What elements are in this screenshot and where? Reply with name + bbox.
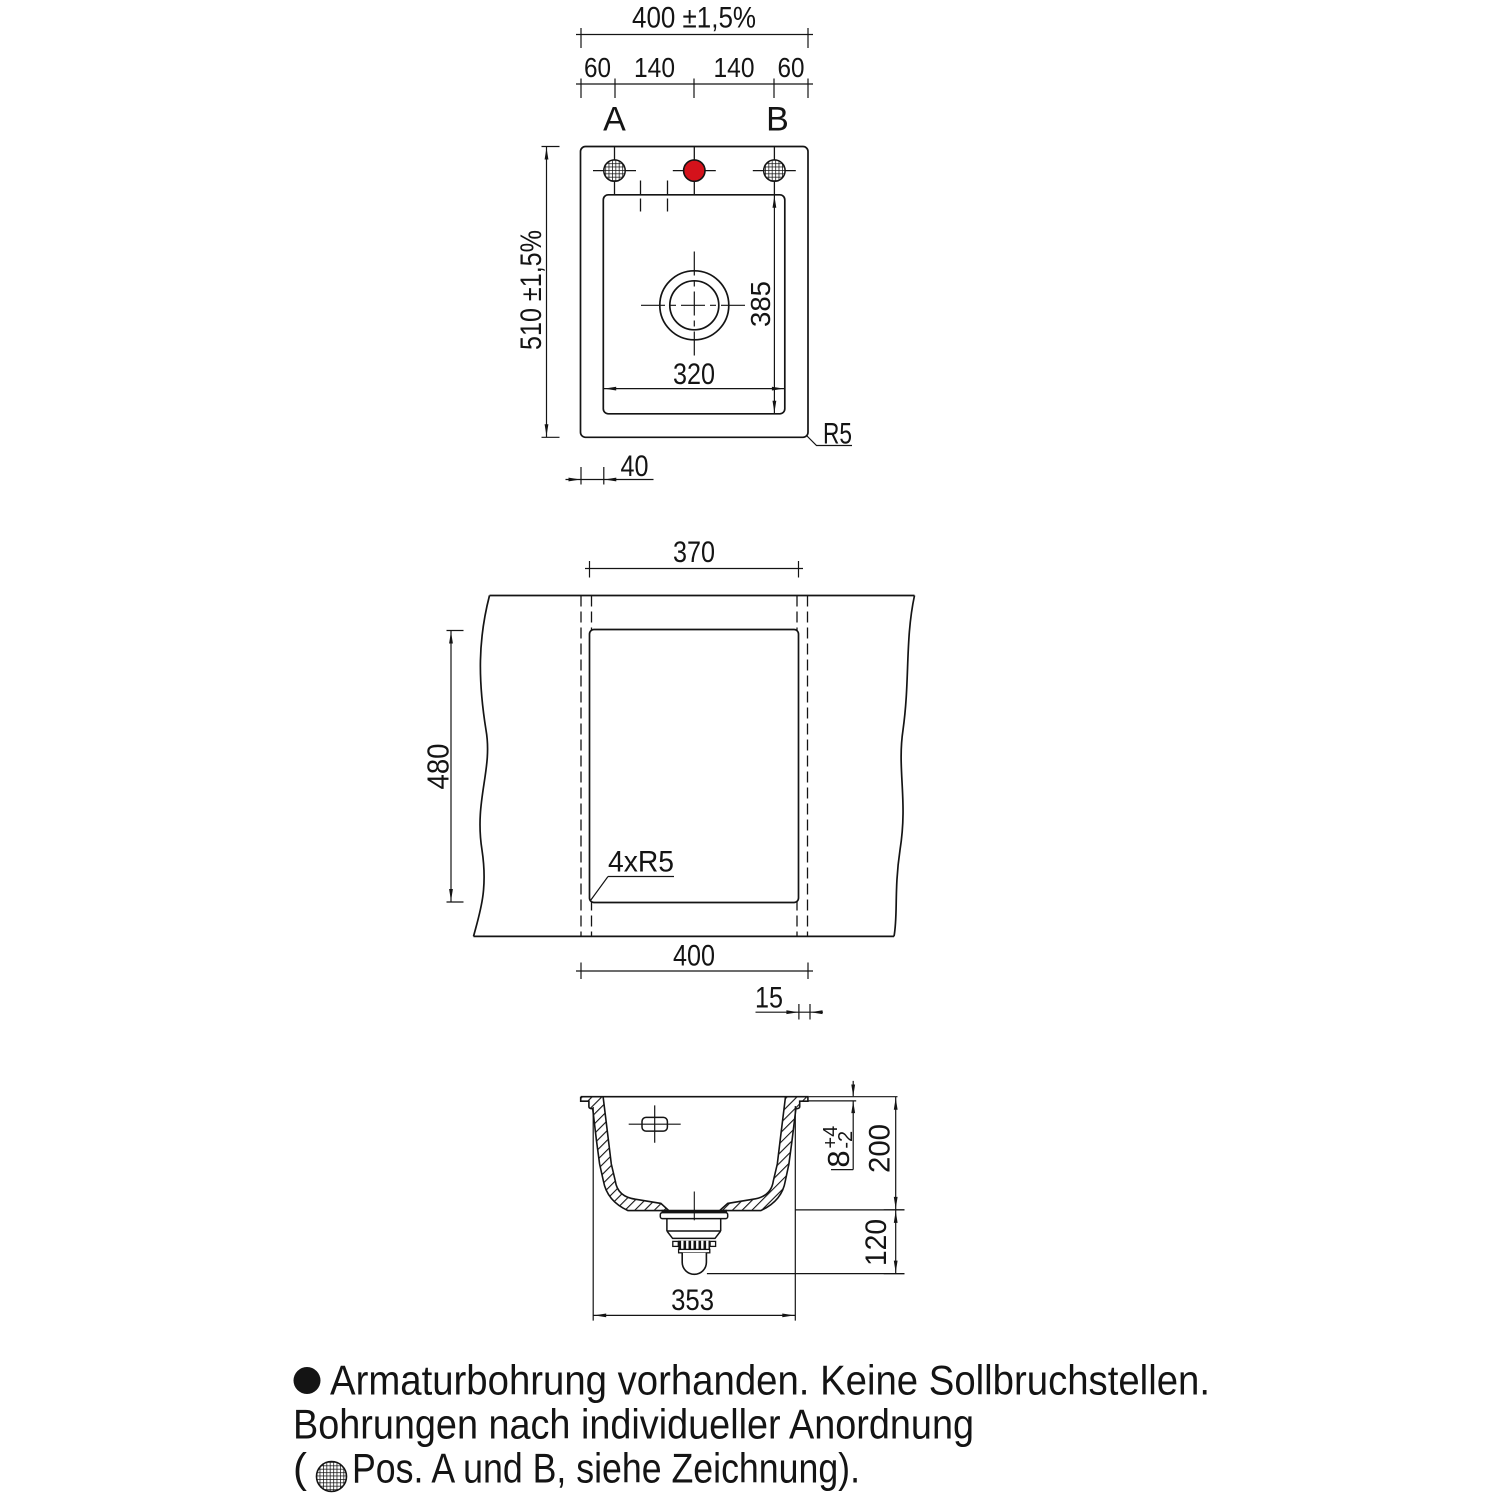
svg-text:15: 15 [755,982,783,1015]
svg-text:140: 140 [634,52,675,83]
svg-text:400 ±1,5%: 400 ±1,5% [632,2,756,35]
svg-text:140: 140 [714,52,755,83]
svg-text:(: ( [293,1445,307,1492]
svg-text:60: 60 [778,52,805,83]
svg-text:120: 120 [860,1219,893,1266]
svg-text:400: 400 [673,940,715,973]
svg-text:200: 200 [864,1124,897,1173]
svg-text:8: 8 [821,1150,856,1167]
svg-text:4xR5: 4xR5 [608,846,674,879]
svg-text:385: 385 [745,281,776,327]
svg-text:60: 60 [584,52,611,83]
svg-text:A: A [603,101,626,139]
svg-text:370: 370 [673,536,715,569]
svg-text:Pos. A und B, siehe Zeichnung): Pos. A und B, siehe Zeichnung). [352,1445,860,1492]
svg-text:320: 320 [673,358,715,391]
svg-text:Bohrungen nach individueller A: Bohrungen nach individueller Anordnung [293,1401,974,1448]
svg-text:-2: -2 [835,1131,857,1149]
svg-text:B: B [766,101,789,139]
svg-text:R5: R5 [823,418,852,451]
svg-text:510 ±1,5%: 510 ±1,5% [515,230,548,350]
svg-text:353: 353 [671,1284,714,1317]
svg-text:480: 480 [421,744,456,790]
svg-text:40: 40 [621,450,649,483]
svg-text:Armaturbohrung vorhanden. Kein: Armaturbohrung vorhanden. Keine Sollbruc… [330,1357,1210,1404]
